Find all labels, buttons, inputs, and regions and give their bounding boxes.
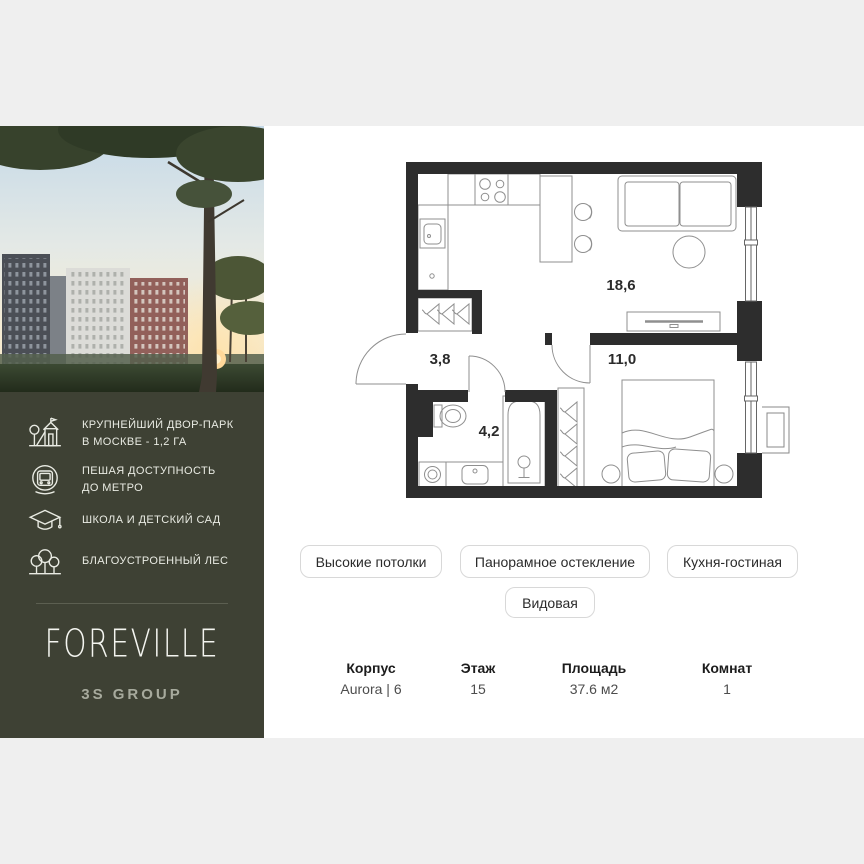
- pillow: [627, 450, 666, 482]
- floor-plan: 18,6 11,0 3,8 4,2: [350, 150, 810, 510]
- feature-metro: ПЕШАЯ ДОСТУПНОСТЬДО МЕТРО: [26, 461, 240, 499]
- detail-value: Aurora | 6: [340, 681, 401, 697]
- tag-panoramic-glazing[interactable]: Панорамное остекление: [460, 545, 650, 578]
- detail-value: 1: [702, 681, 752, 697]
- detail-building: Корпус Aurora | 6: [340, 660, 401, 697]
- room-label-bedroom: 11,0: [608, 351, 636, 368]
- tag-kitchen-living[interactable]: Кухня-гостиная: [667, 545, 798, 578]
- tag-view[interactable]: Видовая: [505, 587, 595, 618]
- detail-label: Комнат: [702, 660, 752, 676]
- detail-floor: Этаж 15: [461, 660, 496, 697]
- brand-logo: FOREVILLE: [26, 621, 237, 667]
- detail-value: 37.6 м2: [562, 681, 627, 697]
- tag-high-ceilings[interactable]: Высокие потолки: [300, 545, 442, 578]
- feature-text: ПЕШАЯ ДОСТУПНОСТЬДО МЕТРО: [82, 463, 216, 497]
- feature-forest: БЛАГОУСТРОЕННЫЙ ЛЕС: [26, 543, 240, 581]
- metro-icon: [26, 461, 64, 499]
- detail-label: Корпус: [340, 660, 401, 676]
- sunset-buildings-illustration: [0, 126, 264, 392]
- detail-rooms: Комнат 1: [702, 660, 752, 697]
- feature-school: ШКОЛА И ДЕТСКИЙ САД: [26, 502, 240, 540]
- developer-name: 3S GROUP: [0, 686, 264, 703]
- listing-card: КРУПНЕЙШИЙ ДВОР-ПАРКВ МОСКВЕ - 1,2 ГА ПЕ…: [0, 126, 864, 738]
- room-label-bathroom: 4,2: [479, 423, 500, 440]
- room-label-kitchen-living: 18,6: [606, 277, 635, 294]
- feature-text: БЛАГОУСТРОЕННЫЙ ЛЕС: [82, 553, 228, 570]
- room-label-hallway: 3,8: [430, 351, 451, 368]
- feature-park: КРУПНЕЙШИЙ ДВОР-ПАРКВ МОСКВЕ - 1,2 ГА: [26, 415, 240, 453]
- feature-text: ШКОЛА И ДЕТСКИЙ САД: [82, 512, 221, 529]
- detail-label: Площадь: [562, 660, 627, 676]
- feature-text: КРУПНЕЙШИЙ ДВОР-ПАРКВ МОСКВЕ - 1,2 ГА: [82, 417, 234, 451]
- complex-photo: [0, 126, 264, 392]
- detail-area: Площадь 37.6 м2: [562, 660, 627, 697]
- panel-divider: [36, 603, 228, 604]
- graduation-icon: [26, 502, 64, 540]
- pillow: [667, 449, 711, 483]
- playground-icon: [26, 415, 64, 453]
- forest-icon: [26, 543, 64, 581]
- brand-panel: КРУПНЕЙШИЙ ДВОР-ПАРКВ МОСКВЕ - 1,2 ГА ПЕ…: [0, 126, 264, 738]
- detail-label: Этаж: [461, 660, 496, 676]
- detail-value: 15: [461, 681, 496, 697]
